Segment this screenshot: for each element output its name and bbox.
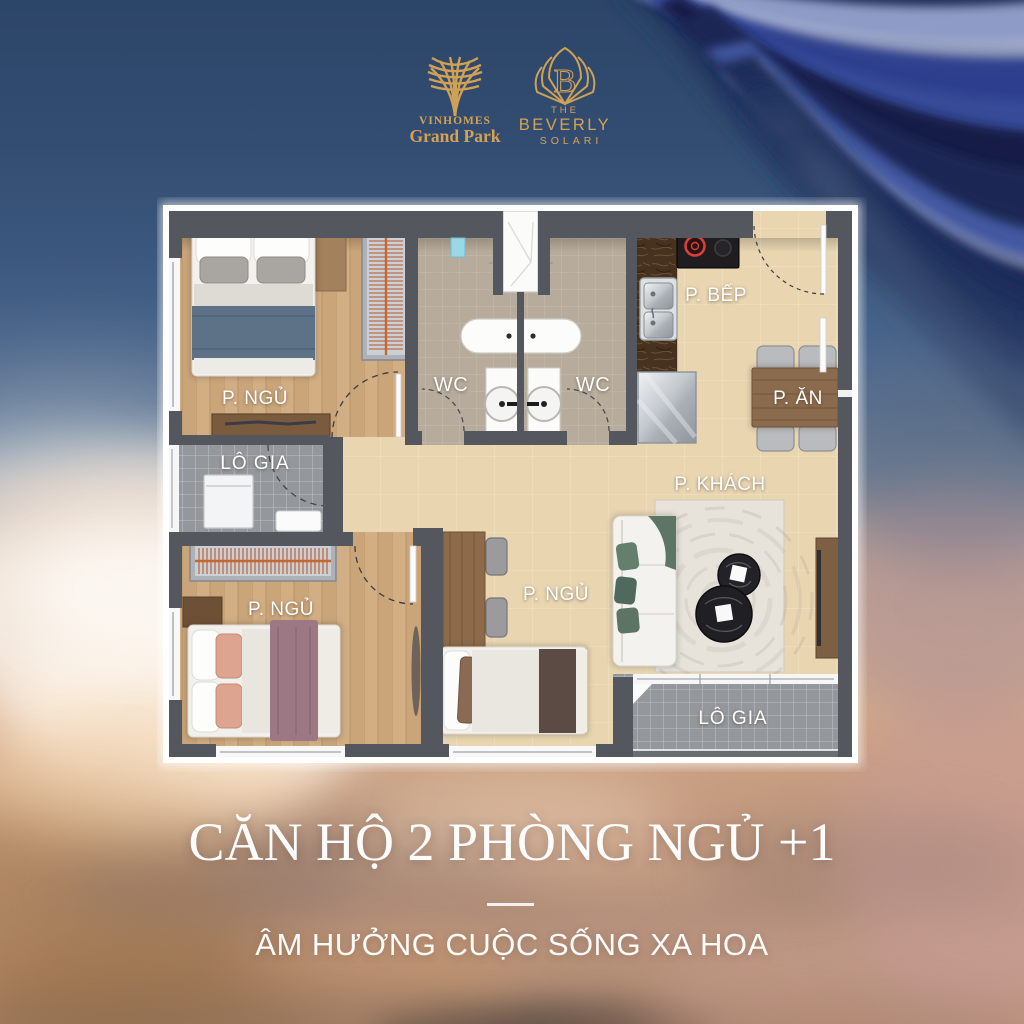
svg-text:WC: WC xyxy=(576,374,610,396)
svg-text:WC: WC xyxy=(434,374,468,396)
svg-text:P. NGỦ: P. NGỦ xyxy=(222,387,288,409)
svg-text:P. ĂN: P. ĂN xyxy=(773,388,823,409)
svg-text:P. NGỦ: P. NGỦ xyxy=(523,583,589,605)
svg-text:LÔ GIA: LÔ GIA xyxy=(698,707,767,729)
svg-text:P. KHÁCH: P. KHÁCH xyxy=(674,474,765,495)
svg-text:LÔ GIA: LÔ GIA xyxy=(220,452,289,474)
svg-text:B: B xyxy=(554,63,577,100)
svg-text:P. NGỦ: P. NGỦ xyxy=(248,598,314,620)
svg-text:P. BẾP: P. BẾP xyxy=(685,284,747,306)
